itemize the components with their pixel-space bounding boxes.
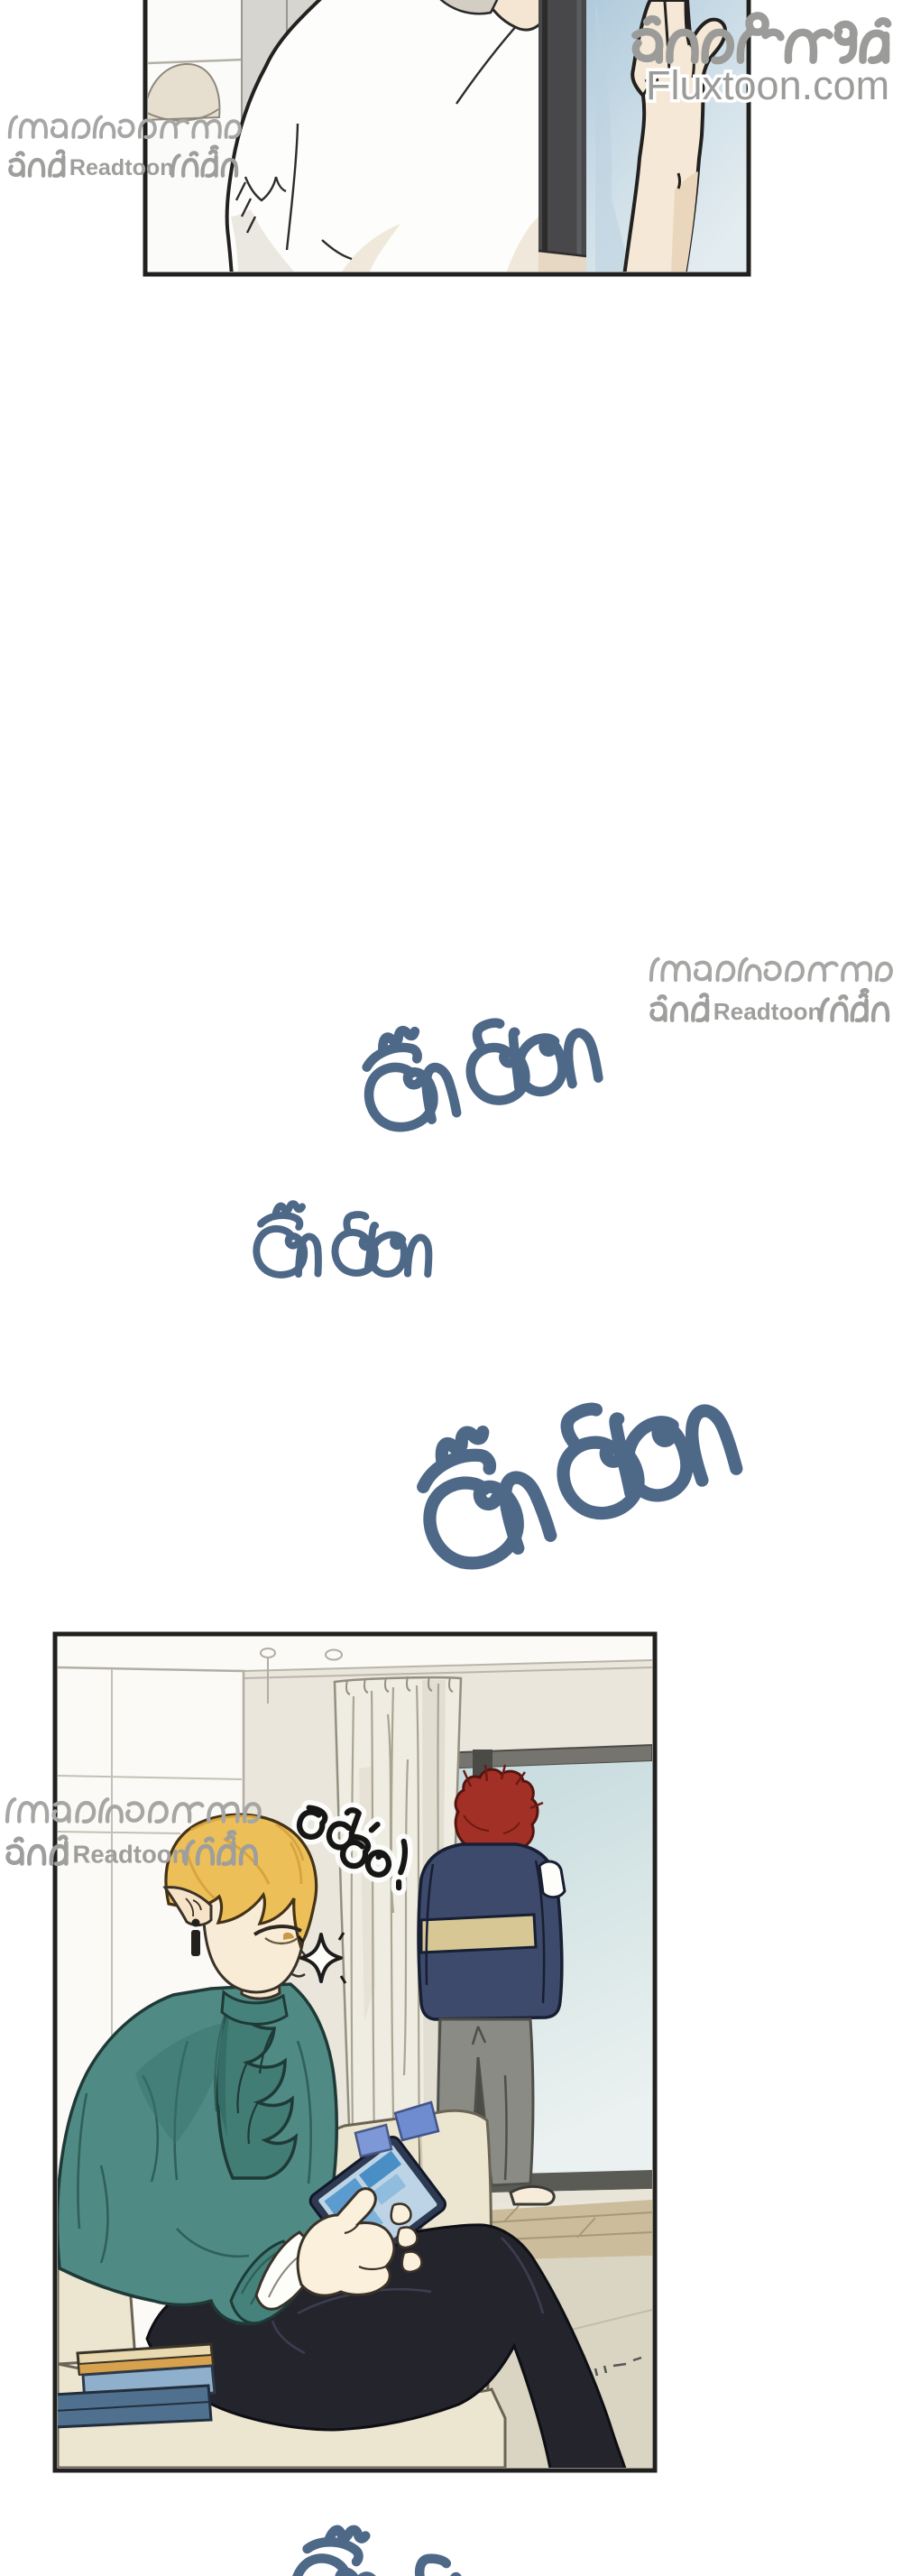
- svg-text:Fluxtoon.com: Fluxtoon.com: [646, 62, 889, 108]
